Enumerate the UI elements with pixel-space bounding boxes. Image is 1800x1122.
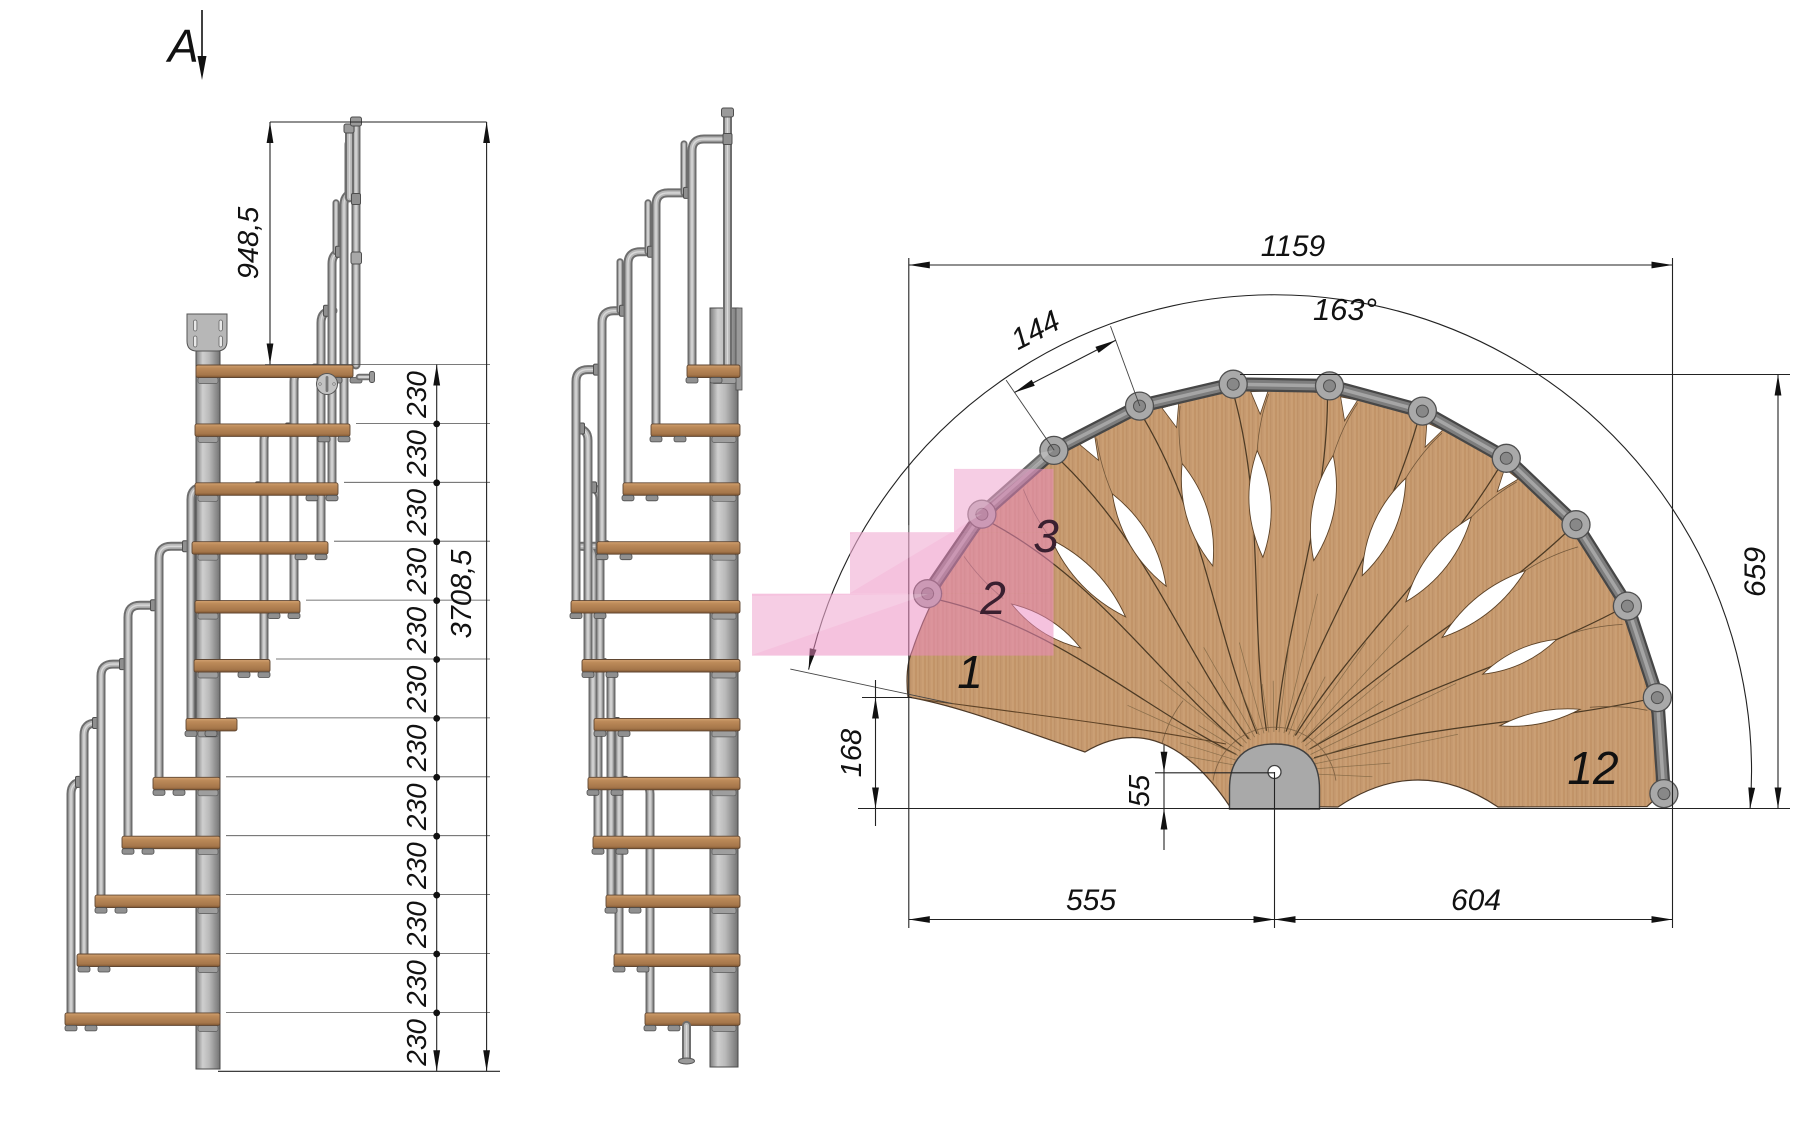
svg-text:230: 230 — [401, 430, 432, 478]
svg-text:230: 230 — [401, 371, 432, 419]
svg-text:555: 555 — [1066, 884, 1116, 917]
svg-text:948,5: 948,5 — [233, 206, 265, 279]
svg-text:230: 230 — [401, 547, 432, 595]
svg-text:230: 230 — [401, 901, 432, 949]
svg-text:230: 230 — [401, 606, 432, 654]
svg-text:2: 2 — [979, 572, 1006, 624]
svg-text:3: 3 — [1033, 510, 1059, 562]
svg-text:230: 230 — [401, 960, 432, 1008]
svg-text:1159: 1159 — [1261, 230, 1326, 263]
svg-text:A: A — [165, 20, 199, 72]
svg-text:168: 168 — [836, 729, 868, 777]
svg-text:230: 230 — [401, 665, 432, 713]
svg-text:230: 230 — [401, 489, 432, 537]
svg-text:163°: 163° — [1313, 292, 1377, 327]
svg-text:659: 659 — [1739, 547, 1772, 597]
svg-text:604: 604 — [1451, 884, 1501, 917]
svg-text:230: 230 — [401, 783, 432, 831]
svg-text:230: 230 — [401, 724, 432, 772]
svg-text:3708,5: 3708,5 — [446, 549, 478, 639]
svg-text:12: 12 — [1567, 742, 1618, 794]
svg-text:230: 230 — [401, 842, 432, 890]
svg-text:55: 55 — [1124, 774, 1156, 807]
svg-text:230: 230 — [401, 1019, 432, 1067]
